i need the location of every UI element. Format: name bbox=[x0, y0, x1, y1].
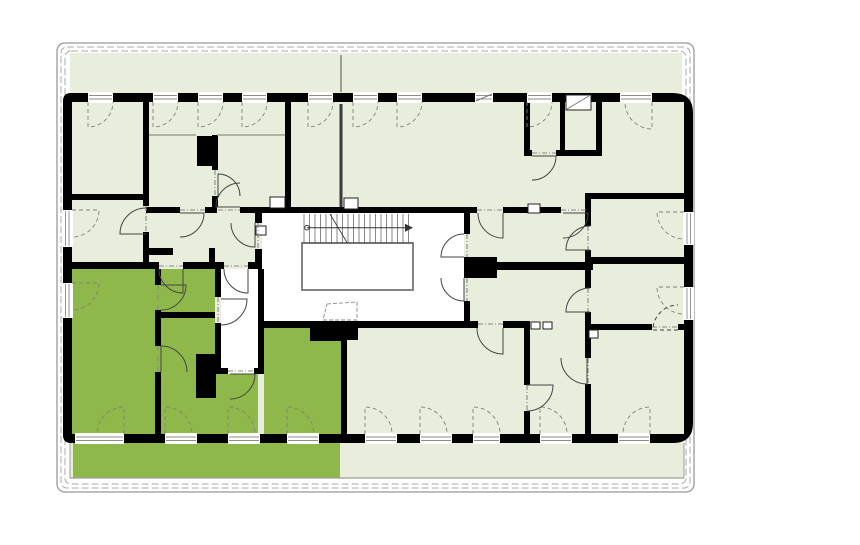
floor-plan-page bbox=[0, 0, 860, 545]
floor-plan bbox=[0, 0, 860, 545]
highlighted-terrace bbox=[73, 443, 340, 478]
stair-well bbox=[302, 243, 413, 290]
